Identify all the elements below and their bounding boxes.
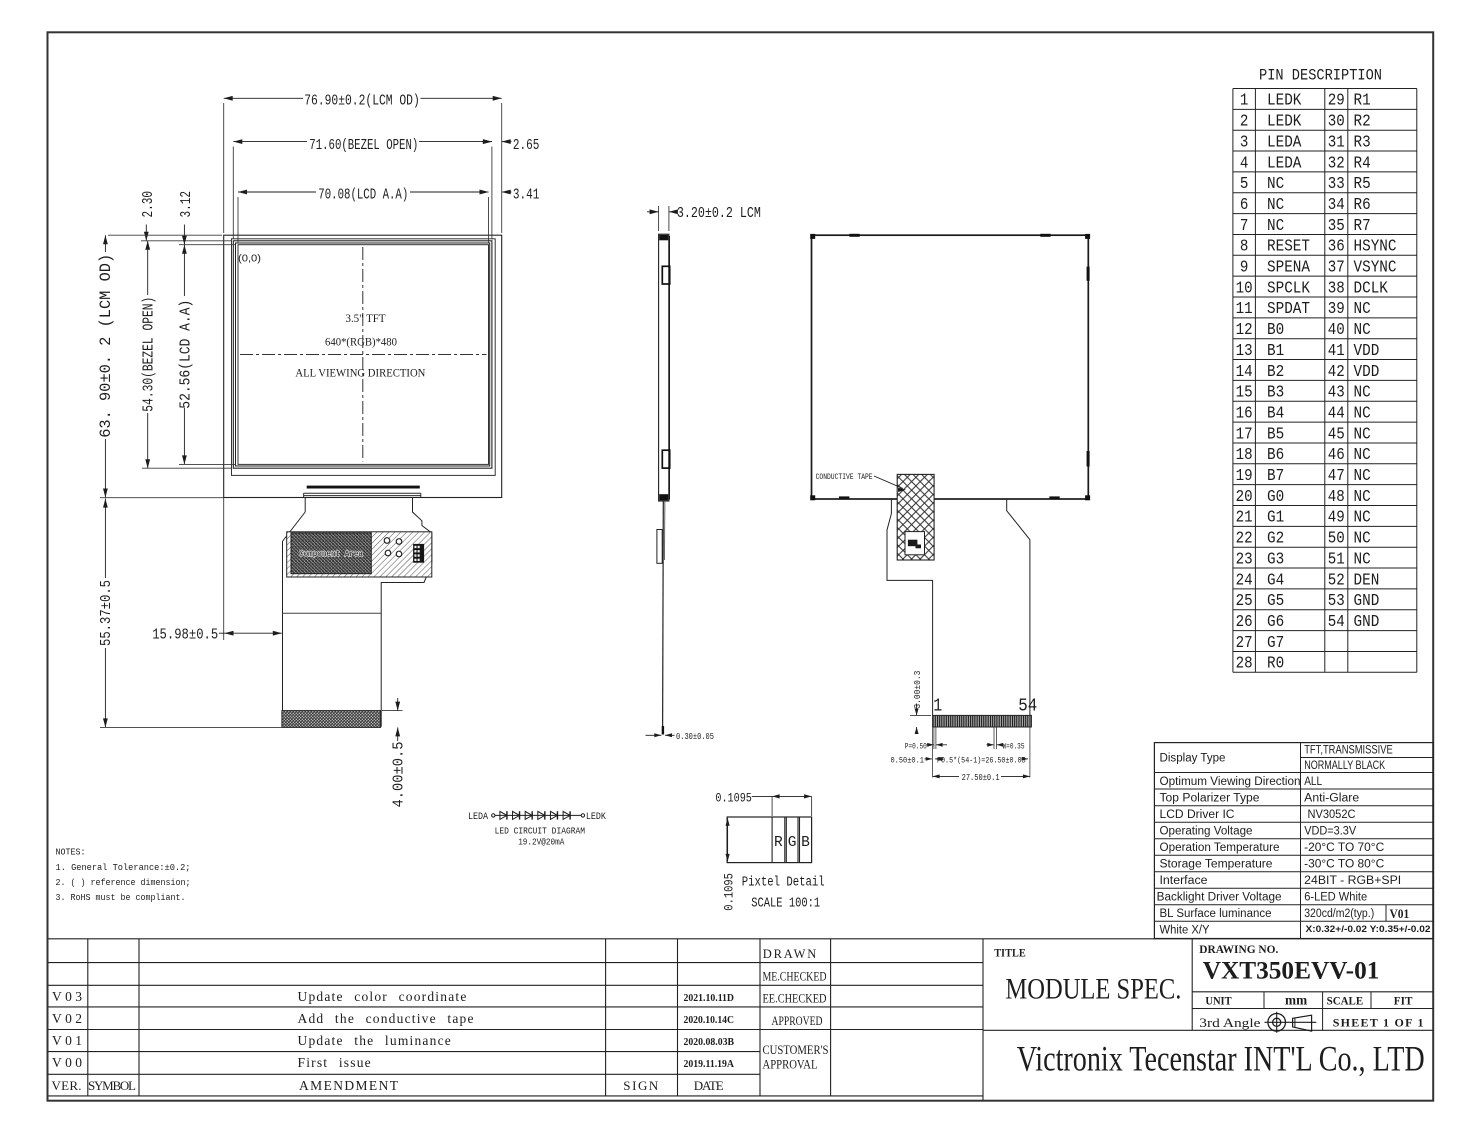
svg-text:SIGN: SIGN xyxy=(623,1078,659,1093)
svg-text:Interface: Interface xyxy=(1160,875,1208,887)
svg-text:16: 16 xyxy=(1236,403,1253,422)
svg-text:SPENA: SPENA xyxy=(1267,258,1310,277)
svg-text:NORMALLY BLACK: NORMALLY BLACK xyxy=(1304,760,1385,772)
svg-text:LCD Driver IC: LCD Driver IC xyxy=(1160,809,1235,821)
svg-text:DRAWING NO.: DRAWING NO. xyxy=(1199,942,1278,956)
svg-text:38: 38 xyxy=(1328,278,1345,297)
svg-text:B0: B0 xyxy=(1267,320,1284,339)
svg-text:2.30: 2.30 xyxy=(140,191,157,218)
svg-text:V02: V02 xyxy=(52,1011,82,1026)
svg-text:Backlight Driver Voltage: Backlight Driver Voltage xyxy=(1157,891,1282,903)
svg-text:17: 17 xyxy=(1236,424,1253,443)
svg-text:320cd/m2(typ.): 320cd/m2(typ.) xyxy=(1304,908,1374,920)
svg-text:0.1095: 0.1095 xyxy=(715,792,752,806)
svg-text:7: 7 xyxy=(1240,216,1249,235)
svg-text:15: 15 xyxy=(1236,383,1253,402)
svg-text:APPROVAL: APPROVAL xyxy=(763,1058,818,1072)
svg-text:APPROVED: APPROVED xyxy=(772,1014,823,1028)
svg-text:53: 53 xyxy=(1328,591,1345,610)
svg-text:FIT: FIT xyxy=(1394,994,1413,1008)
svg-text:LEDA: LEDA xyxy=(1267,132,1301,151)
svg-text:24BIT - RGB+SPI: 24BIT - RGB+SPI xyxy=(1304,875,1401,887)
svg-text:15.98±0.5: 15.98±0.5 xyxy=(152,626,218,643)
svg-text:V01: V01 xyxy=(1390,906,1410,921)
svg-text:Operating Voltage: Operating Voltage xyxy=(1160,825,1253,837)
svg-text:3: 3 xyxy=(1240,132,1249,151)
svg-text:21: 21 xyxy=(1236,508,1253,527)
svg-text:B3: B3 xyxy=(1267,383,1284,402)
svg-text:First issue: First issue xyxy=(298,1055,372,1070)
svg-text:Operation Temperature: Operation Temperature xyxy=(1160,842,1280,854)
svg-text:48: 48 xyxy=(1328,487,1345,506)
svg-text:20: 20 xyxy=(1236,487,1253,506)
svg-text:Optimum Viewing Direction: Optimum Viewing Direction xyxy=(1160,776,1301,788)
svg-text:10: 10 xyxy=(1236,278,1253,297)
svg-text:35: 35 xyxy=(1328,216,1345,235)
svg-text:4: 4 xyxy=(1240,153,1249,172)
svg-text:SYMBOL: SYMBOL xyxy=(88,1078,136,1093)
svg-text:24: 24 xyxy=(1236,570,1253,589)
svg-text:30: 30 xyxy=(1328,112,1345,131)
svg-text:V03: V03 xyxy=(52,989,82,1004)
svg-text:NC: NC xyxy=(1267,174,1284,193)
svg-text:NC: NC xyxy=(1354,487,1371,506)
svg-text:EE.CHECKED: EE.CHECKED xyxy=(763,992,827,1006)
svg-text:25: 25 xyxy=(1236,591,1253,610)
svg-text:Top Polarizer Type: Top Polarizer Type xyxy=(1160,792,1260,804)
svg-text:18: 18 xyxy=(1236,445,1253,464)
svg-text:54.30(BEZEL OPEN): 54.30(BEZEL OPEN) xyxy=(141,297,158,412)
svg-text:NOTES:: NOTES: xyxy=(56,847,86,858)
svg-text:ALL: ALL xyxy=(1304,776,1323,788)
svg-text:2020.08.03B: 2020.08.03B xyxy=(684,1037,735,1048)
svg-text:R0: R0 xyxy=(1267,654,1284,673)
svg-text:44: 44 xyxy=(1328,403,1345,422)
svg-text:UNIT: UNIT xyxy=(1205,994,1231,1008)
svg-text:23: 23 xyxy=(1236,549,1253,568)
svg-text:NC: NC xyxy=(1354,445,1371,464)
svg-text:G2: G2 xyxy=(1267,529,1284,548)
svg-text:VDD: VDD xyxy=(1354,341,1380,360)
svg-text:Storage Temperature: Storage Temperature xyxy=(1160,858,1273,870)
svg-text:52: 52 xyxy=(1328,570,1345,589)
svg-text:3.20±0.2 LCM: 3.20±0.2 LCM xyxy=(677,205,761,222)
svg-text:0.1095: 0.1095 xyxy=(722,873,736,911)
svg-text:27: 27 xyxy=(1236,633,1253,652)
svg-text:19: 19 xyxy=(1236,466,1253,485)
svg-text:8: 8 xyxy=(1240,237,1249,256)
svg-text:27.50±0.1: 27.50±0.1 xyxy=(962,772,1000,783)
svg-text:VSYNC: VSYNC xyxy=(1354,258,1397,277)
svg-text:mm: mm xyxy=(1285,993,1308,1008)
svg-text:DRAWN: DRAWN xyxy=(763,947,817,961)
svg-text:AMENDMENT: AMENDMENT xyxy=(299,1078,399,1093)
svg-text:VDD=3.3V: VDD=3.3V xyxy=(1304,825,1356,837)
svg-text:19.2V@20mA: 19.2V@20mA xyxy=(518,836,564,847)
svg-text:42: 42 xyxy=(1328,362,1345,381)
svg-text:B1: B1 xyxy=(1267,341,1284,360)
svg-text:LED CIRCUIT DIAGRAM: LED CIRCUIT DIAGRAM xyxy=(495,825,586,836)
svg-text:55.37±0.5: 55.37±0.5 xyxy=(98,580,115,646)
svg-text:TFT,TRANSMISSIVE: TFT,TRANSMISSIVE xyxy=(1304,745,1393,757)
svg-text:26: 26 xyxy=(1236,612,1253,631)
svg-text:NC: NC xyxy=(1354,299,1371,318)
svg-text:SCALE: SCALE xyxy=(1327,994,1364,1008)
svg-text:SHEET 1 OF 1: SHEET 1 OF 1 xyxy=(1333,1016,1424,1030)
svg-text:NV3052C: NV3052C xyxy=(1308,809,1356,821)
svg-text:2: 2 xyxy=(1240,112,1249,131)
svg-text:R3: R3 xyxy=(1354,132,1371,151)
svg-text:54: 54 xyxy=(1018,696,1037,716)
svg-text:G3: G3 xyxy=(1267,549,1284,568)
svg-text:HSYNC: HSYNC xyxy=(1354,237,1397,256)
svg-text:1. General Tolerance:±0.2;: 1. General Tolerance:±0.2; xyxy=(56,862,191,873)
svg-text:46: 46 xyxy=(1328,445,1345,464)
svg-text:11: 11 xyxy=(1236,299,1253,318)
svg-text:Anti-Glare: Anti-Glare xyxy=(1304,792,1359,804)
svg-text:B5: B5 xyxy=(1267,424,1284,443)
svg-text:6: 6 xyxy=(1240,195,1249,214)
svg-text:47: 47 xyxy=(1328,466,1345,485)
svg-text:4.00±0.5: 4.00±0.5 xyxy=(390,742,407,808)
svg-text:B: B xyxy=(801,835,810,851)
svg-text:RESET: RESET xyxy=(1267,237,1310,256)
svg-text:63. 90±0. 2 (LCM OD): 63. 90±0. 2 (LCM OD) xyxy=(97,254,115,438)
svg-text:LEDK: LEDK xyxy=(586,812,606,823)
svg-text:CUSTOMER'S: CUSTOMER'S xyxy=(763,1043,829,1057)
svg-text:SPCLK: SPCLK xyxy=(1267,278,1310,297)
svg-text:-30°C TO 80°C: -30°C TO 80°C xyxy=(1304,858,1384,870)
svg-text:V01: V01 xyxy=(52,1033,82,1048)
svg-text:VER.: VER. xyxy=(52,1078,82,1093)
svg-text:Component Area: Component Area xyxy=(299,549,363,559)
svg-text:X:0.32+/-0.02 Y:0.35+/-0.02: X:0.32+/-0.02 Y:0.35+/-0.02 xyxy=(1306,924,1431,934)
svg-text:14: 14 xyxy=(1236,362,1253,381)
svg-text:G: G xyxy=(788,835,797,851)
svg-text:B7: B7 xyxy=(1267,466,1284,485)
svg-text:40: 40 xyxy=(1328,320,1345,339)
svg-text:G6: G6 xyxy=(1267,612,1284,631)
svg-text:0.30±0.05: 0.30±0.05 xyxy=(676,732,714,742)
svg-text:50: 50 xyxy=(1328,529,1345,548)
svg-text:9: 9 xyxy=(1240,258,1249,277)
svg-text:R2: R2 xyxy=(1354,112,1371,131)
svg-text:1: 1 xyxy=(1240,91,1249,110)
svg-text:37: 37 xyxy=(1328,258,1345,277)
svg-text:Pixtel Detail: Pixtel Detail xyxy=(742,876,825,891)
svg-text:3.12: 3.12 xyxy=(178,191,195,218)
svg-text:ALL VIEWING DIRECTION: ALL VIEWING DIRECTION xyxy=(295,366,425,380)
svg-text:V00: V00 xyxy=(52,1055,82,1070)
svg-text:12: 12 xyxy=(1236,320,1253,339)
svg-text:NC: NC xyxy=(1354,549,1371,568)
svg-text:NC: NC xyxy=(1354,383,1371,402)
svg-text:R5: R5 xyxy=(1354,174,1371,193)
svg-text:NC: NC xyxy=(1354,320,1371,339)
svg-text:P=0.50: P=0.50 xyxy=(905,742,927,752)
svg-text:22: 22 xyxy=(1236,529,1253,548)
svg-text:B4: B4 xyxy=(1267,403,1284,422)
svg-text:SCALE 100:1: SCALE 100:1 xyxy=(751,897,820,912)
svg-text:52.56(LCD A.A): 52.56(LCD A.A) xyxy=(177,300,194,409)
svg-text:DCLK: DCLK xyxy=(1354,278,1388,297)
svg-text:ME.CHECKED: ME.CHECKED xyxy=(763,969,827,983)
svg-text:NC: NC xyxy=(1267,195,1284,214)
svg-text:49: 49 xyxy=(1328,508,1345,527)
svg-text:3.00±0.3: 3.00±0.3 xyxy=(913,671,923,709)
svg-text:NC: NC xyxy=(1354,403,1371,422)
svg-text:2019.11.19A: 2019.11.19A xyxy=(684,1059,735,1070)
svg-text:G7: G7 xyxy=(1267,633,1284,652)
svg-text:43: 43 xyxy=(1328,383,1345,402)
svg-text:3rd Angle: 3rd Angle xyxy=(1199,1015,1260,1030)
svg-text:VXT350EVV-01: VXT350EVV-01 xyxy=(1203,955,1380,984)
svg-text:VDD: VDD xyxy=(1354,362,1380,381)
svg-text:BL Surface luminance: BL Surface luminance xyxy=(1160,908,1272,920)
svg-text:G5: G5 xyxy=(1267,591,1284,610)
svg-text:SPDAT: SPDAT xyxy=(1267,299,1310,318)
svg-text:R4: R4 xyxy=(1354,153,1371,172)
svg-text:45: 45 xyxy=(1328,424,1345,443)
svg-text:2020.10.14C: 2020.10.14C xyxy=(684,1015,735,1026)
svg-text:3.41: 3.41 xyxy=(513,186,540,203)
svg-text:P0.5*(54-1)=26.50±0.05: P0.5*(54-1)=26.50±0.05 xyxy=(937,756,1026,766)
svg-text:6-LED White: 6-LED White xyxy=(1304,891,1367,903)
svg-text:LEDA: LEDA xyxy=(468,812,488,823)
svg-text:76.90±0.2(LCM OD): 76.90±0.2(LCM OD) xyxy=(304,92,420,109)
svg-text:TITLE: TITLE xyxy=(994,945,1025,959)
svg-text:R7: R7 xyxy=(1354,216,1371,235)
svg-text:GND: GND xyxy=(1354,591,1380,610)
svg-text:GND: GND xyxy=(1354,612,1380,631)
svg-text:NC: NC xyxy=(1354,508,1371,527)
svg-text:G4: G4 xyxy=(1267,570,1284,589)
svg-text:41: 41 xyxy=(1328,341,1345,360)
svg-text:5: 5 xyxy=(1240,174,1249,193)
svg-text:71.60(BEZEL OPEN): 71.60(BEZEL OPEN) xyxy=(309,137,418,154)
svg-text:640*(RGB)*480: 640*(RGB)*480 xyxy=(325,334,397,348)
svg-text:MODULE SPEC.: MODULE SPEC. xyxy=(1005,973,1181,1006)
svg-text:31: 31 xyxy=(1328,132,1345,151)
svg-text:LEDK: LEDK xyxy=(1267,112,1301,131)
svg-text:32: 32 xyxy=(1328,153,1345,172)
svg-text:R6: R6 xyxy=(1354,195,1371,214)
svg-text:2. ( ) reference dimension;: 2. ( ) reference dimension; xyxy=(56,877,191,888)
svg-text:G1: G1 xyxy=(1267,508,1284,527)
svg-text:CONDUCTIVE TAPE: CONDUCTIVE TAPE xyxy=(816,472,873,482)
svg-text:W=0.35: W=0.35 xyxy=(1003,742,1025,752)
svg-text:Display Type: Display Type xyxy=(1160,753,1226,765)
svg-text:3.5" TFT: 3.5" TFT xyxy=(346,311,387,325)
svg-text:0.50±0.1: 0.50±0.1 xyxy=(891,756,925,766)
svg-text:36: 36 xyxy=(1328,237,1345,256)
svg-text:13: 13 xyxy=(1236,341,1253,360)
svg-text:NC: NC xyxy=(1354,424,1371,443)
svg-text:G0: G0 xyxy=(1267,487,1284,506)
svg-text:B6: B6 xyxy=(1267,445,1284,464)
svg-text:3. RoHS must be compliant.: 3. RoHS must be compliant. xyxy=(56,892,186,903)
svg-text:-20°C TO 70°C: -20°C TO 70°C xyxy=(1304,842,1384,854)
svg-text:PIN DESCRIPTION: PIN DESCRIPTION xyxy=(1259,67,1382,85)
svg-text:39: 39 xyxy=(1328,299,1345,318)
svg-text:(0,0): (0,0) xyxy=(238,253,261,265)
svg-text:34: 34 xyxy=(1328,195,1345,214)
svg-text:29: 29 xyxy=(1328,91,1345,110)
svg-text:NC: NC xyxy=(1354,529,1371,548)
svg-text:33: 33 xyxy=(1328,174,1345,193)
svg-text:51: 51 xyxy=(1328,549,1345,568)
svg-text:NC: NC xyxy=(1354,466,1371,485)
svg-text:28: 28 xyxy=(1236,654,1253,673)
svg-text:R1: R1 xyxy=(1354,91,1371,110)
svg-text:DEN: DEN xyxy=(1354,570,1380,589)
svg-text:B2: B2 xyxy=(1267,362,1284,381)
svg-text:DATE: DATE xyxy=(694,1078,724,1093)
svg-text:White X/Y: White X/Y xyxy=(1160,924,1210,936)
svg-text:Update color coordinate: Update color coordinate xyxy=(298,989,468,1004)
svg-text:1: 1 xyxy=(933,696,942,716)
svg-text:LEDK: LEDK xyxy=(1267,91,1301,110)
svg-text:70.08(LCD A.A): 70.08(LCD A.A) xyxy=(318,186,408,203)
svg-text:54: 54 xyxy=(1328,612,1345,631)
svg-text:LEDA: LEDA xyxy=(1267,153,1301,172)
svg-text:Update the luminance: Update the luminance xyxy=(298,1033,452,1048)
svg-text:R: R xyxy=(774,835,783,851)
svg-text:2.65: 2.65 xyxy=(513,137,540,154)
svg-text:2021.10.11D: 2021.10.11D xyxy=(684,993,735,1004)
svg-text:Add the conductive tape: Add the conductive tape xyxy=(298,1011,475,1026)
svg-text:Victronix Tecenstar INT'L Co.,: Victronix Tecenstar INT'L Co., LTD xyxy=(1017,1039,1425,1079)
svg-text:NC: NC xyxy=(1267,216,1284,235)
